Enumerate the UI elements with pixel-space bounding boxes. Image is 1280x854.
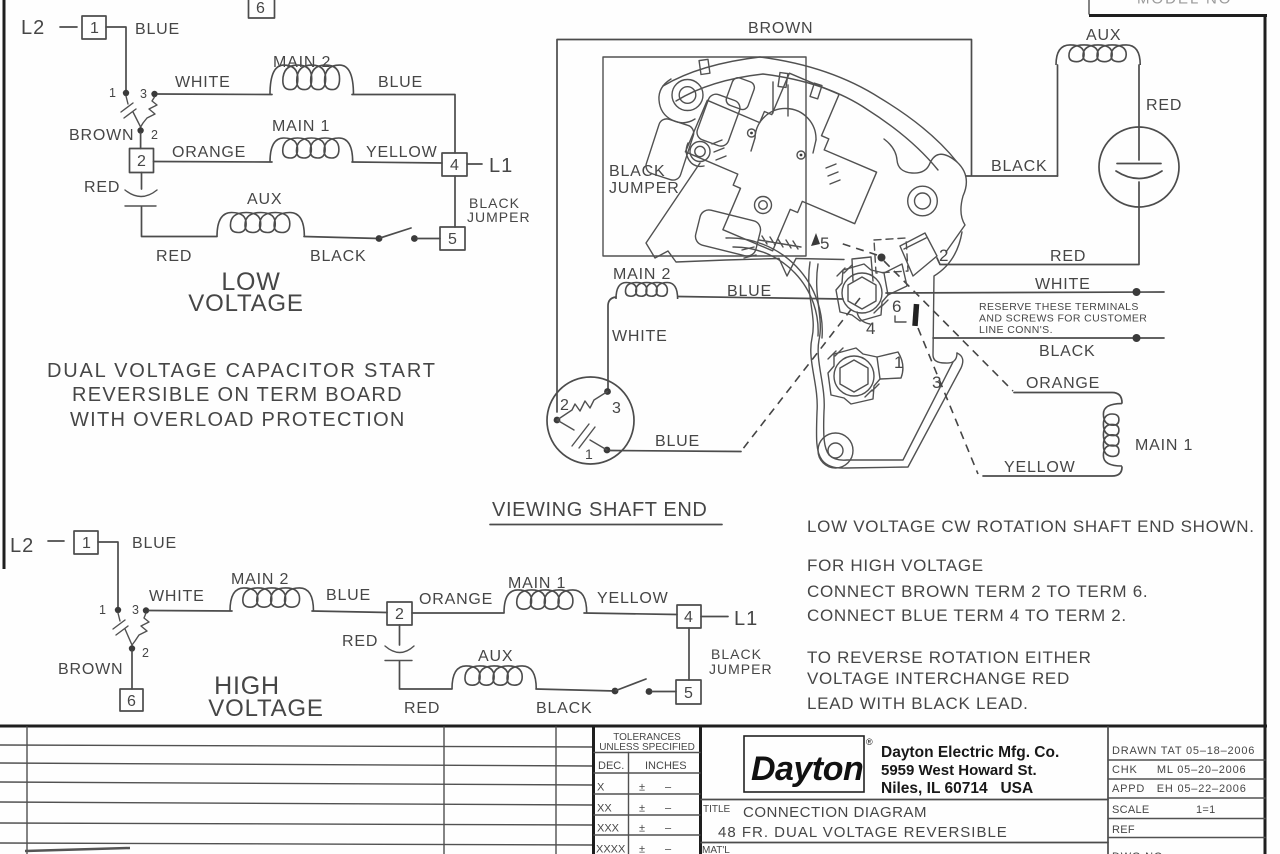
svg-text:FOR HIGH VOLTAGE: FOR HIGH VOLTAGE bbox=[807, 556, 984, 575]
svg-text:MAIN 2: MAIN 2 bbox=[613, 266, 671, 283]
svg-text:AUX: AUX bbox=[1086, 27, 1121, 44]
svg-text:BLUE: BLUE bbox=[378, 74, 423, 91]
svg-text:6: 6 bbox=[892, 297, 902, 316]
svg-text:RED: RED bbox=[156, 248, 192, 265]
svg-text:MODEL NO: MODEL NO bbox=[1137, 0, 1232, 8]
svg-text:RED: RED bbox=[84, 179, 120, 196]
svg-text:48 FR. DUAL VOLTAGE REVERSIBLE: 48 FR. DUAL VOLTAGE REVERSIBLE bbox=[718, 824, 1008, 841]
svg-text:3: 3 bbox=[140, 87, 147, 101]
svg-text:5959 West Howard St.: 5959 West Howard St. bbox=[881, 762, 1037, 779]
svg-text:BROWN: BROWN bbox=[58, 661, 123, 678]
svg-text:2: 2 bbox=[939, 246, 949, 265]
svg-text:1: 1 bbox=[585, 446, 594, 462]
svg-text:Dayton: Dayton bbox=[751, 750, 863, 788]
svg-text:–: – bbox=[665, 844, 672, 854]
svg-text:VOLTAGE: VOLTAGE bbox=[208, 695, 323, 722]
svg-text:X: X bbox=[597, 782, 605, 794]
svg-text:CONNECT BROWN TERM 2 TO TERM 6: CONNECT BROWN TERM 2 TO TERM 6. bbox=[807, 582, 1148, 601]
svg-text:DRAWN TAT 05–18–2006: DRAWN TAT 05–18–2006 bbox=[1112, 745, 1255, 757]
svg-text:DUAL VOLTAGE CAPACITOR START: DUAL VOLTAGE CAPACITOR START bbox=[47, 360, 437, 382]
svg-text:AND SCREWS FOR CUSTOMER: AND SCREWS FOR CUSTOMER bbox=[979, 313, 1147, 325]
svg-text:WHITE: WHITE bbox=[1035, 276, 1091, 293]
svg-text:DEC.: DEC. bbox=[598, 760, 624, 772]
svg-text:L1: L1 bbox=[489, 155, 513, 177]
svg-text:6: 6 bbox=[256, 0, 265, 17]
svg-text:LEAD WITH BLACK LEAD.: LEAD WITH BLACK LEAD. bbox=[807, 694, 1029, 713]
svg-text:MAIN 2: MAIN 2 bbox=[231, 571, 289, 588]
svg-text:XXX: XXX bbox=[597, 823, 620, 835]
svg-text:TO REVERSE ROTATION EITHER: TO REVERSE ROTATION EITHER bbox=[807, 648, 1092, 667]
svg-text:RESERVE THESE TERMINALS: RESERVE THESE TERMINALS bbox=[979, 301, 1139, 313]
svg-text:2: 2 bbox=[560, 397, 570, 414]
svg-text:INCHES: INCHES bbox=[645, 760, 687, 772]
svg-text:VOLTAGE: VOLTAGE bbox=[188, 290, 303, 317]
svg-text:MAIN 1: MAIN 1 bbox=[1135, 437, 1193, 454]
svg-text:BLACK: BLACK bbox=[711, 646, 762, 662]
svg-text:5: 5 bbox=[684, 685, 693, 702]
svg-text:3: 3 bbox=[612, 400, 622, 417]
svg-text:XX: XX bbox=[597, 803, 612, 815]
svg-text:±: ± bbox=[639, 803, 645, 815]
svg-text:BROWN: BROWN bbox=[748, 20, 813, 37]
svg-text:SCALE: SCALE bbox=[1112, 804, 1150, 816]
svg-text:AUX: AUX bbox=[247, 191, 282, 208]
svg-text:JUMPER: JUMPER bbox=[467, 209, 531, 225]
svg-text:BLUE: BLUE bbox=[326, 587, 371, 604]
svg-text:JUMPER: JUMPER bbox=[709, 661, 773, 677]
svg-text:2: 2 bbox=[137, 153, 146, 170]
svg-text:1: 1 bbox=[99, 603, 106, 617]
svg-text:2: 2 bbox=[395, 606, 404, 623]
svg-text:Dayton Electric Mfg. Co.: Dayton Electric Mfg. Co. bbox=[881, 744, 1059, 761]
svg-text:BLUE: BLUE bbox=[655, 433, 700, 450]
svg-text:MAIN 1: MAIN 1 bbox=[272, 118, 330, 135]
svg-text:APPD EH 05–22–2006: APPD EH 05–22–2006 bbox=[1112, 783, 1247, 795]
svg-text:VIEWING SHAFT END: VIEWING SHAFT END bbox=[492, 499, 707, 521]
svg-text:±: ± bbox=[639, 844, 645, 854]
svg-text:XXXX: XXXX bbox=[596, 844, 626, 854]
svg-text:1=1: 1=1 bbox=[1196, 804, 1216, 816]
svg-text:CHK ML 05–20–2006: CHK ML 05–20–2006 bbox=[1112, 764, 1246, 776]
svg-text:3: 3 bbox=[932, 373, 942, 392]
svg-text:–: – bbox=[665, 823, 672, 835]
svg-text:1: 1 bbox=[90, 20, 99, 37]
svg-text:®: ® bbox=[866, 737, 873, 747]
svg-text:BLACK: BLACK bbox=[536, 700, 592, 717]
svg-text:VOLTAGE INTERCHANGE RED: VOLTAGE INTERCHANGE RED bbox=[807, 669, 1070, 688]
svg-text:JUMPER: JUMPER bbox=[609, 180, 680, 197]
svg-text:2: 2 bbox=[142, 646, 149, 660]
svg-text:MAT'L: MAT'L bbox=[702, 845, 730, 854]
svg-text:L2: L2 bbox=[10, 535, 34, 557]
svg-text:6: 6 bbox=[127, 693, 136, 710]
svg-text:±: ± bbox=[639, 823, 645, 835]
svg-text:YELLOW: YELLOW bbox=[1004, 459, 1076, 476]
svg-text:LINE CONN'S.: LINE CONN'S. bbox=[979, 324, 1053, 336]
svg-text:WHITE: WHITE bbox=[149, 588, 205, 605]
svg-text:BLACK: BLACK bbox=[1039, 343, 1095, 360]
svg-text:3: 3 bbox=[132, 603, 139, 617]
svg-text:RED: RED bbox=[404, 700, 440, 717]
svg-text:RED: RED bbox=[1146, 97, 1182, 114]
svg-text:BLUE: BLUE bbox=[132, 535, 177, 552]
svg-text:BLUE: BLUE bbox=[135, 21, 180, 38]
svg-text:2: 2 bbox=[151, 128, 158, 142]
svg-text:RED: RED bbox=[342, 633, 378, 650]
svg-text:REVERSIBLE ON TERM BOARD: REVERSIBLE ON TERM BOARD bbox=[72, 384, 403, 406]
svg-text:Niles, IL 60714 USA: Niles, IL 60714 USA bbox=[881, 780, 1033, 797]
svg-text:AUX: AUX bbox=[478, 648, 513, 665]
svg-text:–: – bbox=[665, 782, 672, 794]
svg-text:BLACK: BLACK bbox=[310, 248, 366, 265]
svg-text:WHITE: WHITE bbox=[175, 74, 231, 91]
svg-text:–: – bbox=[665, 803, 672, 815]
svg-text:4: 4 bbox=[450, 157, 459, 174]
svg-text:BLACK: BLACK bbox=[991, 158, 1047, 175]
svg-text:1: 1 bbox=[109, 86, 116, 100]
svg-text:UNLESS SPECIFIED: UNLESS SPECIFIED bbox=[599, 742, 695, 753]
svg-text:ORANGE: ORANGE bbox=[1026, 375, 1100, 392]
svg-text:LOW VOLTAGE CW ROTATION SHAFT: LOW VOLTAGE CW ROTATION SHAFT END SHOWN. bbox=[807, 517, 1255, 536]
svg-text:CONNECT BLUE TERM 4 TO TERM 2.: CONNECT BLUE TERM 4 TO TERM 2. bbox=[807, 606, 1127, 625]
svg-text:ORANGE: ORANGE bbox=[172, 144, 246, 161]
svg-text:1: 1 bbox=[894, 353, 904, 372]
svg-text:1: 1 bbox=[82, 535, 91, 552]
svg-text:BLACK: BLACK bbox=[609, 163, 665, 180]
svg-text:ORANGE: ORANGE bbox=[419, 591, 493, 608]
svg-text:WITH OVERLOAD PROTECTION: WITH OVERLOAD PROTECTION bbox=[70, 409, 406, 431]
svg-text:4: 4 bbox=[866, 319, 876, 338]
svg-text:5: 5 bbox=[820, 234, 830, 253]
svg-text:REF: REF bbox=[1112, 824, 1135, 836]
svg-text:WHITE: WHITE bbox=[612, 328, 668, 345]
svg-text:4: 4 bbox=[684, 609, 693, 626]
svg-text:L2: L2 bbox=[21, 17, 45, 39]
svg-text:L1: L1 bbox=[734, 608, 758, 630]
svg-text:TITLE: TITLE bbox=[703, 804, 731, 815]
svg-text:RED: RED bbox=[1050, 248, 1086, 265]
svg-text:5: 5 bbox=[448, 231, 457, 248]
svg-text:BROWN: BROWN bbox=[69, 127, 134, 144]
svg-text:YELLOW: YELLOW bbox=[597, 590, 669, 607]
svg-text:CONNECTION DIAGRAM: CONNECTION DIAGRAM bbox=[743, 804, 927, 821]
svg-text:±: ± bbox=[639, 782, 645, 794]
svg-text:YELLOW: YELLOW bbox=[366, 144, 438, 161]
